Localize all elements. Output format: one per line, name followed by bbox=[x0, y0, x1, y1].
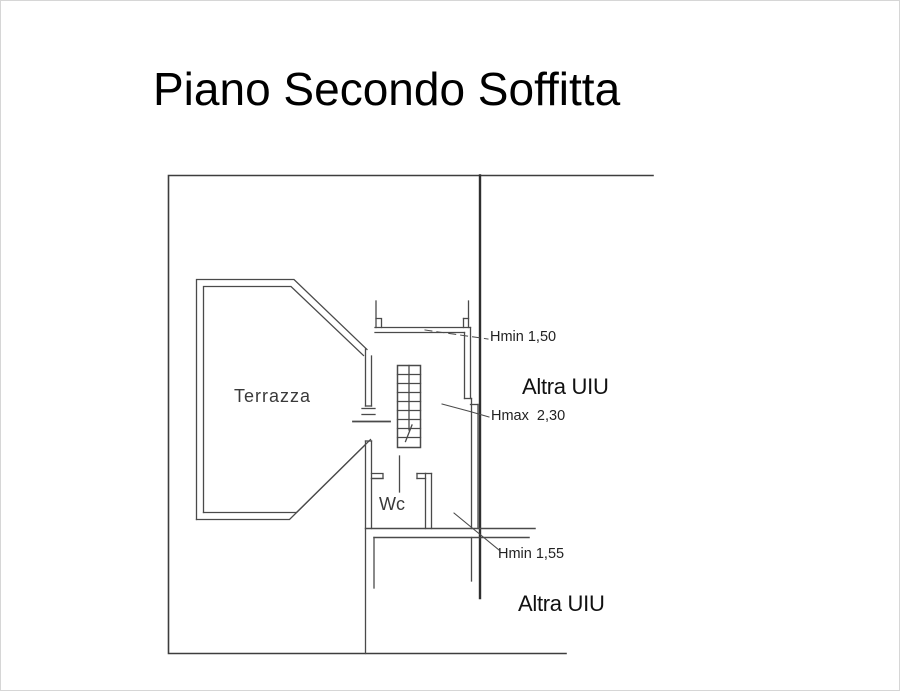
terrace-label: Terrazza bbox=[234, 387, 311, 405]
wc-room-walls bbox=[372, 456, 432, 529]
staircase bbox=[398, 366, 421, 448]
page-title: Piano Secondo Soffitta bbox=[153, 66, 620, 112]
stair-room-left-wall bbox=[366, 349, 372, 654]
leader-hmin-150 bbox=[425, 330, 488, 339]
height-annotation-hmin-150: Hmin 1,50 bbox=[490, 330, 556, 345]
annotation-leaders bbox=[425, 330, 499, 550]
other-unit-label-lower: Altra UIU bbox=[518, 593, 605, 615]
height-annotation-hmin-155: Hmin 1,55 bbox=[498, 547, 564, 562]
terrace-door bbox=[353, 409, 390, 422]
floor-plan-page: Piano Secondo Soffitta Terrazza Wc Altra… bbox=[0, 0, 900, 691]
height-annotation-hmax-230: Hmax 2,30 bbox=[491, 409, 565, 424]
leader-hmin-155 bbox=[454, 513, 499, 550]
wc-label: Wc bbox=[379, 495, 405, 513]
other-unit-label-upper: Altra UIU bbox=[522, 376, 609, 398]
leader-hmax-230 bbox=[442, 404, 489, 417]
outer-boundary bbox=[169, 176, 654, 654]
